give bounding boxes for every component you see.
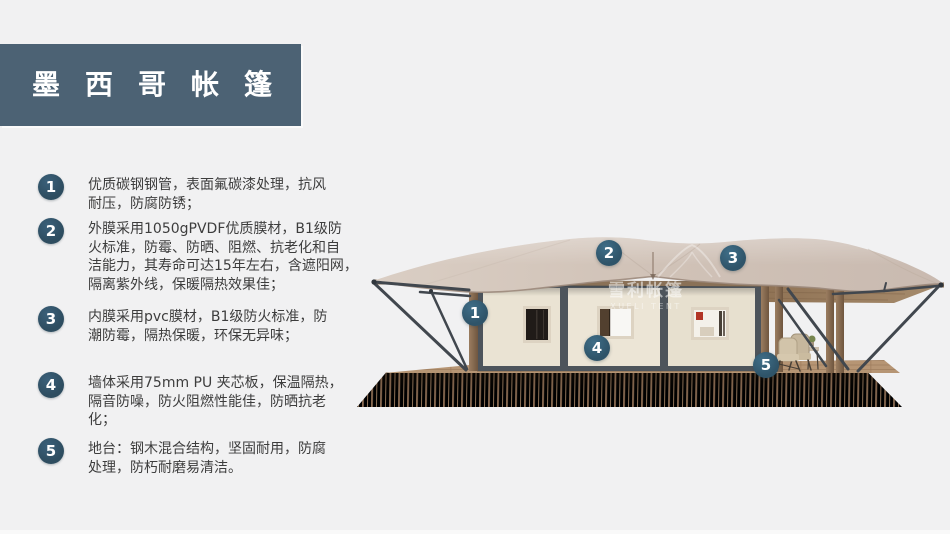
feature-item-3: 3 内膜采用pvc膜材，B1级防火标准，防 潮防霉，隔热保暖，环保无异味； [38,306,327,345]
feature-text: 优质碳钢钢管，表面氟碳漆处理，抗风 耐压，防腐防锈； [88,176,326,213]
feature-line: 耐压，防腐防锈； [88,195,326,214]
title-banner: 墨西哥帐篷 [0,44,301,126]
feature-number-badge: 1 [38,174,64,200]
diagram-marker-1: 1 [462,300,488,326]
feature-item-4: 4 墙体采用75mm PU 夹芯板，保温隔热， 隔音防噪，防火阻燃性能佳，防晒抗… [38,372,343,430]
window-3 [691,307,729,340]
porch-post [826,287,834,373]
diagram-marker-4: 4 [584,335,610,361]
feature-line: 优质碳钢钢管，表面氟碳漆处理，抗风 [88,176,326,195]
corner-post-left [469,285,478,371]
feature-text: 内膜采用pvc膜材，B1级防火标准，防 潮防霉，隔热保暖，环保无异味； [88,308,327,345]
panel-shadow [668,288,755,296]
strut [420,292,470,296]
guy-cable [374,283,466,370]
wall-block [469,281,769,371]
feature-line: 隔音防噪，防火阻燃性能佳，防晒抗老 [88,393,343,412]
tent-illustration [350,210,950,480]
feature-number-badge: 2 [38,218,64,244]
panel-shadow [568,288,660,296]
feature-line: 内膜采用pvc膜材，B1级防火标准，防 [88,308,327,327]
deck-shading [357,373,902,408]
left-rigging [371,279,470,370]
feature-line: 隔离紫外线，保暖隔热效果佳； [88,276,358,295]
feature-number-badge: 5 [38,438,64,464]
window-1 [523,306,551,343]
red-sign [696,312,703,320]
feature-text: 地台：钢木混合结构，坚固耐用，防腐 处理，防朽耐磨易清洁。 [88,440,326,477]
diagram-marker-5: 5 [753,352,779,378]
feature-line: 墙体采用75mm PU 夹芯板，保温隔热， [88,374,343,393]
anchor [371,279,376,284]
feature-item-5: 5 地台：钢木混合结构，坚固耐用，防腐 处理，防朽耐磨易清洁。 [38,438,326,477]
diagram-marker-3: 3 [720,245,746,271]
feature-item-1: 1 优质碳钢钢管，表面氟碳漆处理，抗风 耐压，防腐防锈； [38,174,326,213]
feature-text: 外膜采用1050gPVDF优质膜材，B1级防 火标准，防霉、防晒、阻燃、抗老化和… [88,220,358,294]
feature-item-2: 2 外膜采用1050gPVDF优质膜材，B1级防 火标准，防霉、防晒、阻燃、抗老… [38,218,358,294]
slide: 墨西哥帐篷 1 优质碳钢钢管，表面氟碳漆处理，抗风 耐压，防腐防锈； 2 外膜采… [0,0,950,534]
feature-number-badge: 4 [38,372,64,398]
feature-number-badge: 3 [38,306,64,332]
diagram-marker-2: 2 [596,240,622,266]
feature-line: 火标准，防霉、防晒、阻燃、抗老化和自 [88,239,358,258]
door-window-2 [597,306,634,339]
feature-line: 地台：钢木混合结构，坚固耐用，防腐 [88,440,326,459]
feature-line: 潮防霉，隔热保暖，环保无异味； [88,327,327,346]
anchor [938,282,943,287]
guy-cable [431,291,467,369]
feature-line: 洁能力，其寿命可达15年左右，含遮阳网， [88,257,358,276]
feature-line: 化； [88,411,343,430]
bottom-edge-strip [0,530,950,534]
anchor [429,289,433,293]
feature-line: 处理，防朽耐磨易清洁。 [88,459,326,478]
page-title: 墨西哥帐篷 [0,44,301,126]
feature-text: 墙体采用75mm PU 夹芯板，保温隔热， 隔音防噪，防火阻燃性能佳，防晒抗老 … [88,374,343,430]
feature-line: 外膜采用1050gPVDF优质膜材，B1级防 [88,220,358,239]
